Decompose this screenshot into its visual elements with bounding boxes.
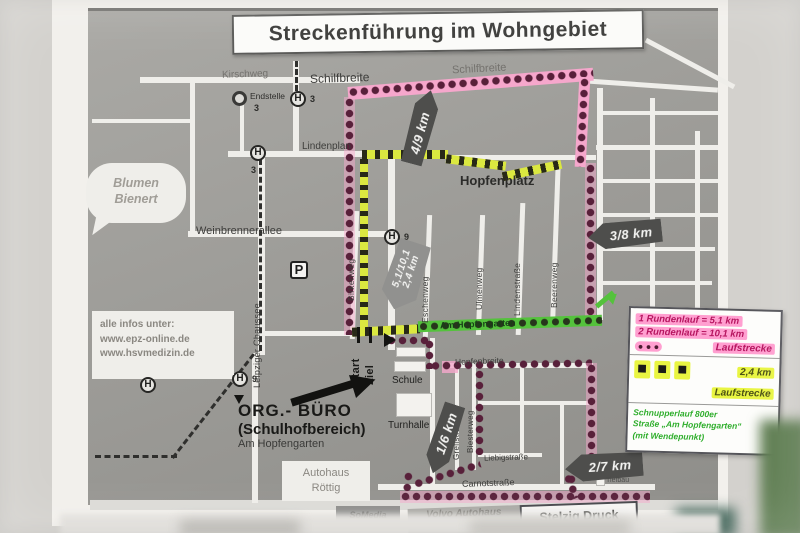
street-label-carnotstrasse: Carnotstraße [462, 477, 515, 489]
route-pink-lower [474, 369, 485, 455]
street-label-liebigstrasse: Liebigstraße [484, 452, 528, 463]
street-label-leipziger-chaussee: Leipziger Chaussee [252, 298, 262, 388]
blumen-bienert-bubble: Blumen Bienert [86, 163, 186, 223]
school-building [396, 347, 426, 357]
street-line [258, 331, 353, 336]
map-title-box: Streckenführung im Wohngebiet [232, 9, 645, 55]
legend-green-line3: (mit Wendepunkt) [632, 430, 772, 445]
street-label-hopfenbreite: Hopfenbreite [455, 355, 504, 367]
street-label-ulmenweg: Ulmenweg [474, 248, 484, 310]
tram-stop-icon: H [250, 145, 266, 161]
finish-line-tick [369, 327, 372, 343]
street-line [585, 78, 718, 92]
tram-stop-icon: H [290, 91, 306, 107]
tram-stop-icon: H [232, 371, 248, 387]
legend-square: ■ [634, 360, 650, 378]
legend-yellow-label: Laufstrecke [711, 387, 773, 400]
blumen-line1: Blumen [86, 175, 186, 191]
route-yellow-left [360, 159, 368, 333]
legend-square: ■ [674, 361, 690, 379]
photo-bottom-blur [470, 520, 630, 533]
street-line [597, 88, 603, 320]
info-heading: alle infos unter: [100, 318, 226, 333]
street-line [240, 98, 244, 153]
org-buero-line3: Am Hopfengarten [238, 438, 366, 450]
street-label-lindenplan: Lindenplan [302, 141, 351, 152]
street-label-birkenweg: Birkenweg [346, 231, 356, 301]
tram-line-number: 3 [251, 165, 256, 175]
endstelle-loop-icon [232, 91, 247, 106]
street-line [190, 79, 195, 235]
street-line [520, 365, 524, 460]
street-label-lindenstrasse: Lindenstraße [512, 236, 522, 316]
photo-bottom-blur [180, 520, 300, 533]
schule-label: Schule [392, 375, 423, 386]
autohaus-line1: Autohaus [282, 466, 370, 481]
route-pink-right-upper [575, 77, 591, 167]
legend-pink-section: 1 Rundenlauf = 5,1 km 2 Rundenlauf = 10,… [630, 308, 781, 359]
street-line [600, 111, 718, 115]
parking-icon: P [290, 261, 308, 279]
legend-round2: 2 Rundenlauf = 10,1 km [635, 326, 747, 340]
photo-of-route-map: H H H H H P 3 3 9 9 Endstelle 3 Kirschwe… [0, 0, 800, 533]
info-url-1[interactable]: www.epz-online.de [100, 333, 226, 348]
street-label-schilfbreite: Schilfbreite [310, 70, 370, 86]
autohaus-line2: Röttig [282, 481, 370, 496]
legend-square: ■ [654, 361, 670, 379]
legend-dots-sample: ● ● ● [635, 341, 663, 352]
legend-green-section: Schnupperlauf 800er Straße „Am Hopfengar… [627, 403, 778, 449]
street-label-weinbrennerallee: Weinbrennerallee [196, 225, 282, 237]
org-buero-line2: (Schulhofbereich) [238, 421, 366, 438]
legend-yellow-km: 2,4 km [737, 366, 774, 378]
street-line [92, 375, 237, 379]
info-box: alle infos unter: www.epz-online.de www.… [92, 311, 234, 375]
tram-stop-icon: H [384, 229, 400, 245]
street-label-biesterweg: Biesterweg [466, 391, 475, 453]
tram-line-number: 3 [254, 103, 259, 113]
street-line [650, 98, 655, 320]
street-line [92, 119, 192, 123]
blumen-line2: Bienert [86, 191, 186, 207]
bubble-tail [92, 218, 111, 239]
turnhalle-label: Turnhalle [388, 420, 429, 431]
green-turnpoint-arrowhead [605, 289, 620, 305]
org-buero-line1: ORG.- BÜRO [238, 401, 366, 421]
direction-arrow-icon [384, 333, 396, 347]
route-pink-right [585, 163, 596, 323]
street-line [388, 155, 395, 350]
street-label-kirschweg: Kirschweg [222, 68, 268, 81]
street-label-hopfenplatz: Hopfenplatz [460, 173, 534, 188]
street-line [600, 179, 718, 183]
legend-pink-label: Laufstrecke [713, 342, 775, 355]
legend-yellow-section: ■ ■ ■ 2,4 km Laufstrecke [628, 355, 779, 407]
info-url-2[interactable]: www.hsvmedizin.de [100, 347, 226, 362]
tram-dashed-line [95, 455, 177, 458]
tram-stop-icon: H [140, 377, 156, 393]
route-pink-lower [586, 363, 597, 455]
map-title: Streckenführung im Wohngebiet [269, 18, 608, 47]
map-panel: H H H H H P 3 3 9 9 Endstelle 3 Kirschwe… [88, 8, 718, 505]
endstelle-label: Endstelle [250, 91, 285, 101]
legend-squares-sample: ■ ■ ■ [634, 360, 690, 379]
autohaus-roettig-box: Autohaus Röttig [282, 461, 370, 501]
school-building [394, 361, 426, 372]
gym-building [396, 393, 432, 417]
tram-line-number: 3 [310, 94, 315, 104]
street-label-beerenweg: Beerenweg [549, 243, 559, 308]
photo-background-plant [760, 420, 800, 533]
street-line [695, 131, 700, 320]
tiefbau-label: Tiefbau [606, 477, 629, 484]
legend-round1: 1 Rundenlauf = 5,1 km [635, 313, 742, 327]
start-line-tick [357, 327, 360, 343]
org-buero-block: ORG.- BÜRO (Schulhofbereich) Am Hopfenga… [238, 401, 366, 450]
street-line [478, 401, 594, 405]
street-line [600, 213, 718, 217]
